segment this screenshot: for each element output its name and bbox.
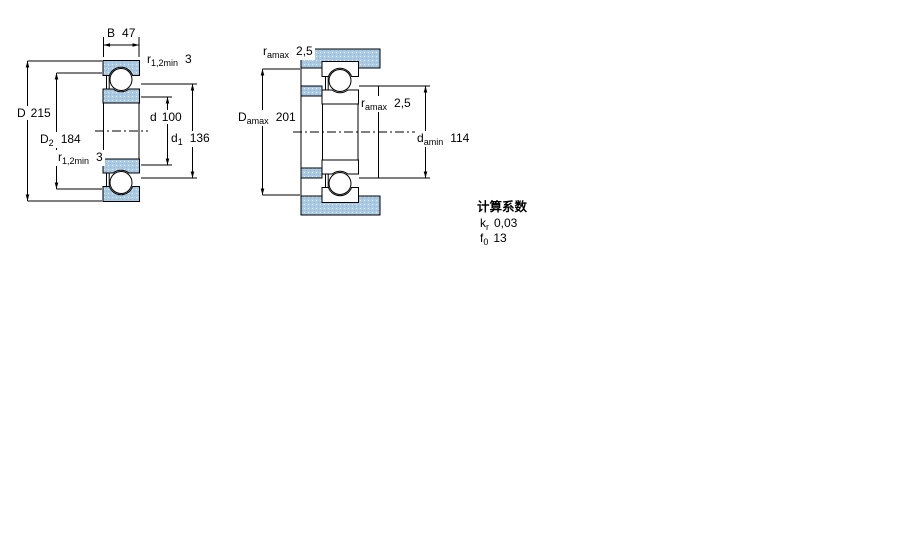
shaft-abutment-bottom [301,168,322,178]
shaft-abutment-top [301,86,322,96]
right-mounting-diagram [261,49,440,215]
dim-D-lines [26,61,102,201]
dim-label-d: d100 [148,110,184,124]
page-canvas: B47 r1,2min3 D215 D2184 r1,2min3 d100 d1… [0,0,900,560]
dim-label-ramax-top: ramax2,5 [261,44,315,60]
dim-label-ramax-mid: ramax2,5 [359,96,413,112]
bearing-technical-drawing [0,0,900,560]
calculation-factors-title: 计算系数 [477,196,527,215]
dim-label-D2: D2184 [38,132,83,148]
dim-label-damin: damin114 [415,131,471,147]
dim-B-lines [104,37,140,57]
dim-D2-lines [55,73,102,189]
dim-label-Damax: Damax201 [236,110,298,126]
calc-factor-f0: f013 [478,231,509,247]
dim-label-B: B47 [105,26,137,40]
dim-label-D: D215 [15,106,53,120]
dim-d-lines [141,97,172,165]
calc-factor-kr: kr0,03 [478,216,519,232]
dim-label-r12min-top: r1,2min3 [145,52,194,68]
dim-label-d1: d1136 [169,131,212,147]
dim-label-r12min-bottom: r1,2min3 [56,150,105,166]
